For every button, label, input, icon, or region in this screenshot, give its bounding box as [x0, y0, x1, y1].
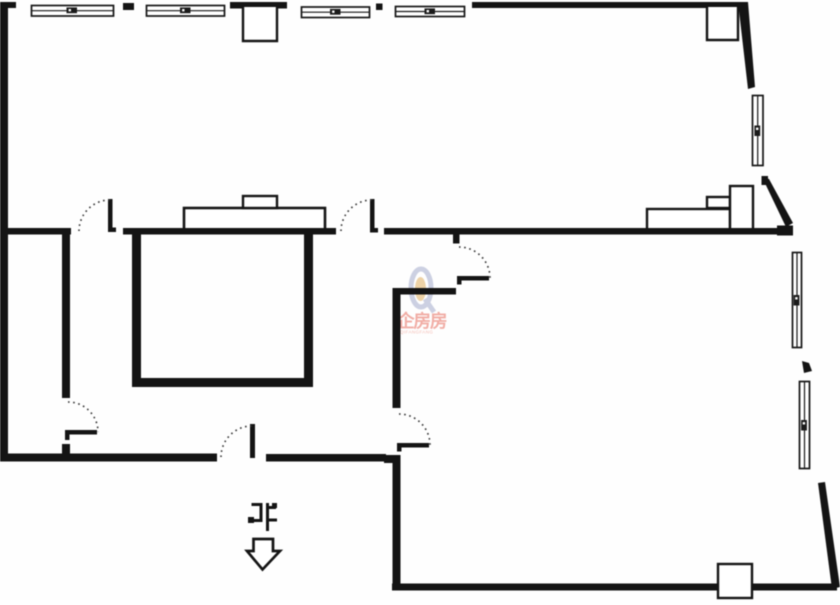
svg-text:QIFANGFANG: QIFANGFANG — [400, 330, 433, 335]
svg-text:企房房: 企房房 — [396, 311, 447, 331]
